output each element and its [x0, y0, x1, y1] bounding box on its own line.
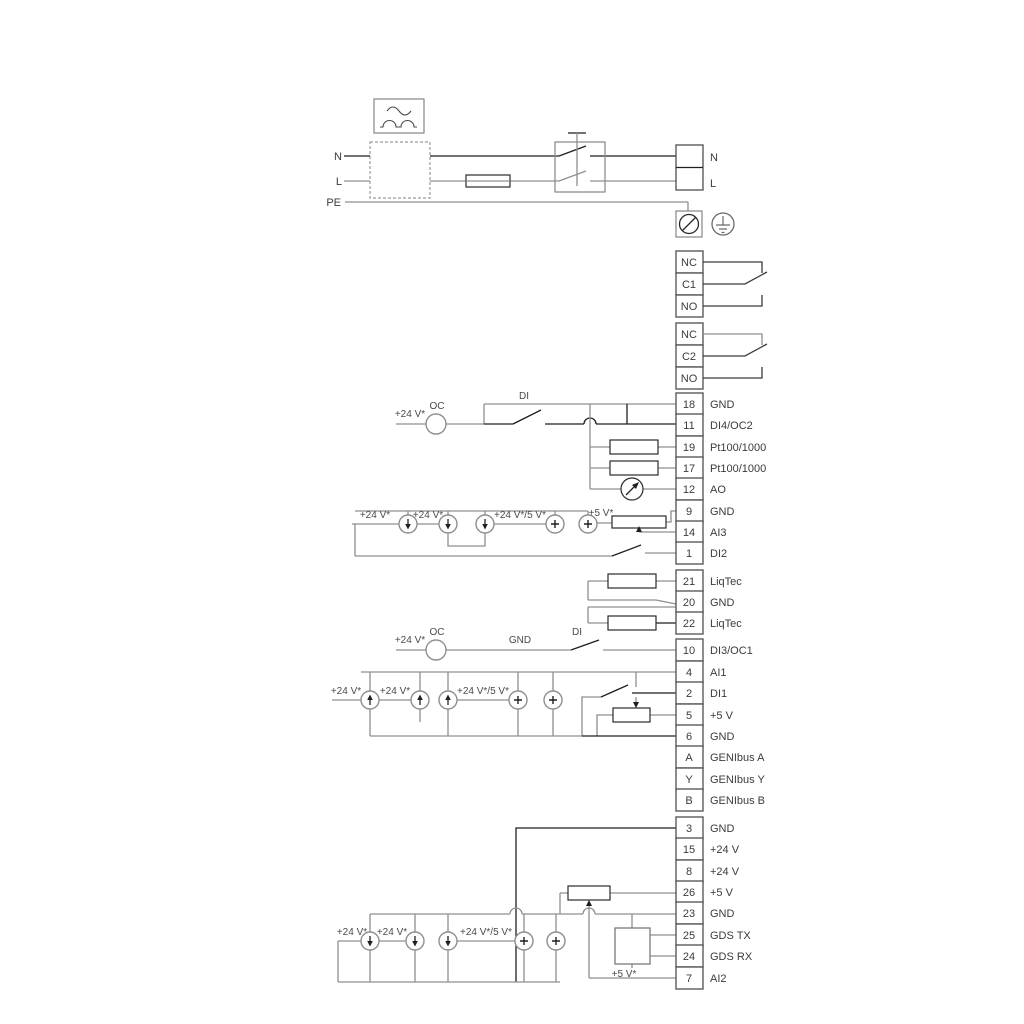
gds-sensor-box	[615, 928, 650, 964]
label-24v: +24 V*	[360, 510, 390, 521]
relay1-no: NO	[681, 301, 698, 313]
wiring-diagram: N L PE N L NC C1 NO NC C2 NO +24 V* OC D…	[0, 0, 1024, 1024]
pot-wiper-arrow	[633, 702, 639, 708]
terminal-label: GDS RX	[710, 951, 753, 963]
terminal-label: Pt100/1000	[710, 463, 766, 475]
wiring-4-2-5-6: +24 V* +24 V* +24 V*/5 V*	[331, 672, 676, 736]
wiring-18-11: +24 V* OC DI	[395, 391, 676, 434]
terminal-label: DI2	[710, 548, 727, 560]
open-collector-symbol	[426, 640, 446, 660]
label-pe-left: PE	[326, 197, 341, 209]
terminal-label: AI3	[710, 527, 727, 539]
terminal-number: 1	[686, 548, 692, 560]
terminal-number: 4	[686, 667, 692, 679]
label-24v-5v: +24 V*/5 V*	[457, 686, 509, 697]
terminal-number: 26	[683, 887, 695, 899]
terminal-number: A	[685, 752, 693, 764]
terminal-number: 21	[683, 576, 695, 588]
label-24v: +24 V*	[377, 927, 407, 938]
terminal-label: GND	[710, 506, 735, 518]
wiring-liqtec	[588, 574, 676, 630]
terminal-label: DI4/OC2	[710, 420, 753, 432]
wires-black	[484, 404, 676, 424]
terminal-label: +5 V	[710, 887, 734, 899]
label-24v: +24 V*	[337, 927, 367, 938]
terminal-label: +5 V	[710, 710, 734, 722]
wiring-10: +24 V* OC GND DI	[395, 627, 676, 660]
terminal-label: LiqTec	[710, 576, 742, 588]
diagram-canvas: N L PE N L NC C1 NO NC C2 NO +24 V* OC D…	[0, 0, 1024, 1024]
pt100-resistor-2	[610, 461, 658, 475]
terminal-number: B	[685, 795, 692, 807]
l-pe-wires	[344, 133, 688, 211]
open-collector-symbol	[426, 414, 446, 434]
terminal-number: Y	[685, 774, 693, 786]
wires-black	[516, 828, 676, 982]
terminal-number: 22	[683, 618, 695, 630]
terminal-number: 10	[683, 645, 695, 657]
relay-1: NC C1 NO	[676, 251, 767, 317]
terminal-label: GND	[710, 597, 735, 609]
terminal-label: Pt100/1000	[710, 442, 766, 454]
relay2-contact-wires	[703, 344, 767, 378]
label-di: DI	[519, 391, 529, 402]
relay2-c2: C2	[682, 351, 696, 363]
terminal-number: 24	[683, 951, 695, 963]
terminal-number: 20	[683, 597, 695, 609]
terminal-number: 7	[686, 973, 692, 985]
label-24v: +24 V*	[395, 635, 425, 646]
relay1-c1: C1	[682, 279, 696, 291]
earth-symbol-lines	[716, 216, 730, 233]
terminal-number: 9	[686, 506, 692, 518]
rectified-wave-icon	[380, 121, 417, 128]
potentiometer	[568, 886, 610, 900]
sine-wave-icon	[387, 107, 411, 115]
wiring-9-14-1: +24 V* +24 V* +24 V*/5 V* +5 V*	[352, 508, 676, 556]
terminal-number: 11	[683, 420, 694, 432]
terminal-label: GND	[710, 731, 735, 743]
terminal-label: GND	[710, 908, 735, 920]
terminal-number: 19	[683, 442, 695, 454]
terminal-strip: 18 GND 11 DI4/OC2 19 Pt100/1000 17 Pt100…	[676, 393, 766, 989]
label-24v-5v: +24 V*/5 V*	[494, 510, 546, 521]
terminal-number: 2	[686, 688, 692, 700]
label-24v: +24 V*	[331, 686, 361, 697]
terminal-number: 8	[686, 866, 692, 878]
terminal-number: 6	[686, 731, 692, 743]
terminal-number: 17	[683, 463, 695, 475]
wiring-bottom-block: +24 V* +24 V* +24 V*/5 V* +5 V*	[337, 828, 676, 982]
terminal-label: GND	[710, 823, 735, 835]
relay2-no: NO	[681, 373, 698, 385]
relay1-contact-wires	[703, 262, 767, 306]
terminal-number: 3	[686, 823, 692, 835]
terminal-number: 5	[686, 710, 692, 722]
filter-box-dashed	[370, 142, 430, 198]
wires-gray	[332, 672, 676, 736]
waveform-box	[374, 99, 424, 133]
terminal-label: GDS TX	[710, 930, 751, 942]
relay2-nc-wire	[703, 334, 762, 345]
terminal-number: 18	[683, 399, 695, 411]
terminal-number: 23	[683, 908, 695, 920]
label-5v: +5 V*	[612, 969, 637, 980]
terminal-label: AO	[710, 484, 726, 496]
wiring-19-17-12	[590, 404, 676, 500]
label-24v: +24 V*	[413, 510, 443, 521]
pt100-resistor-1	[610, 440, 658, 454]
terminal-label: DI3/OC1	[710, 645, 753, 657]
label-24v-5v: +24 V*/5 V*	[460, 927, 512, 938]
terminal-label: AI2	[710, 973, 727, 985]
pot-wiper-arrow	[586, 900, 592, 906]
terminal-number: 12	[683, 484, 695, 496]
label-24v: +24 V*	[395, 409, 425, 420]
label-gnd: GND	[509, 635, 531, 646]
terminal-label: DI1	[710, 688, 727, 700]
terminal-label: GENIbus B	[710, 795, 765, 807]
terminal-label: +24 V	[710, 866, 740, 878]
label-n-left: N	[334, 151, 342, 163]
label-l-right: L	[710, 178, 716, 190]
terminal-label: GENIbus A	[710, 752, 765, 764]
relay1-nc: NC	[681, 257, 697, 269]
liqtec-sensor-1	[608, 574, 656, 588]
terminal-label: +24 V	[710, 844, 740, 856]
potentiometer	[613, 708, 650, 722]
power-circuit: N L PE N L	[326, 99, 734, 237]
label-24v: +24 V*	[380, 686, 410, 697]
terminal-label: GND	[710, 399, 735, 411]
di2-switch-blade	[612, 545, 641, 556]
label-l-left: L	[336, 176, 342, 188]
label-oc: OC	[430, 627, 445, 638]
label-di: DI	[572, 627, 582, 638]
terminal-label: LiqTec	[710, 618, 742, 630]
label-oc: OC	[430, 401, 445, 412]
label-n-right: N	[710, 152, 718, 164]
liqtec-sensor-2	[608, 616, 656, 630]
label-5v: +5 V*	[589, 508, 614, 519]
relay2-nc: NC	[681, 329, 697, 341]
terminal-number: 14	[683, 527, 695, 539]
terminal-number: 15	[683, 844, 695, 856]
di3-switch-blade	[571, 640, 599, 650]
relay-2: NC C2 NO	[676, 323, 767, 389]
terminal-label: AI1	[710, 667, 727, 679]
main-switch-box	[555, 142, 605, 192]
n-wires	[344, 133, 676, 156]
terminal-label: GENIbus Y	[710, 774, 765, 786]
terminal-number: 25	[683, 930, 695, 942]
